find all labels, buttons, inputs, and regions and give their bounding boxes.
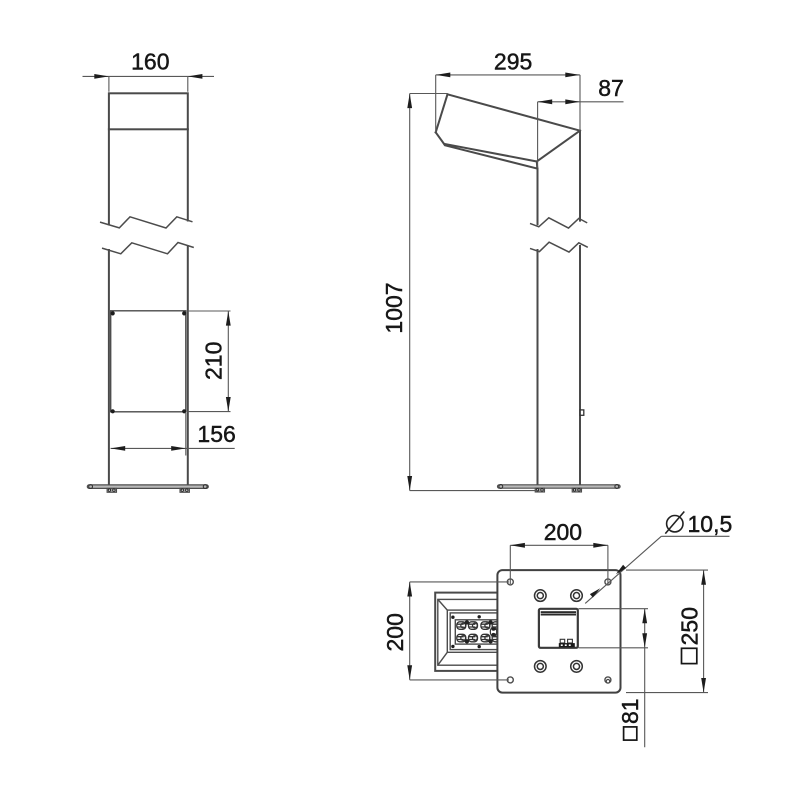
- svg-text:210: 210: [201, 342, 227, 380]
- svg-text:295: 295: [494, 49, 532, 75]
- svg-text:200: 200: [544, 519, 582, 545]
- svg-text:1007: 1007: [381, 282, 407, 333]
- svg-text:10,5: 10,5: [688, 511, 733, 537]
- svg-text:250: 250: [677, 607, 703, 645]
- svg-text:200: 200: [382, 613, 408, 651]
- svg-text:160: 160: [131, 49, 169, 75]
- svg-text:87: 87: [598, 75, 624, 101]
- svg-text:156: 156: [197, 421, 235, 447]
- svg-text:81: 81: [617, 698, 643, 724]
